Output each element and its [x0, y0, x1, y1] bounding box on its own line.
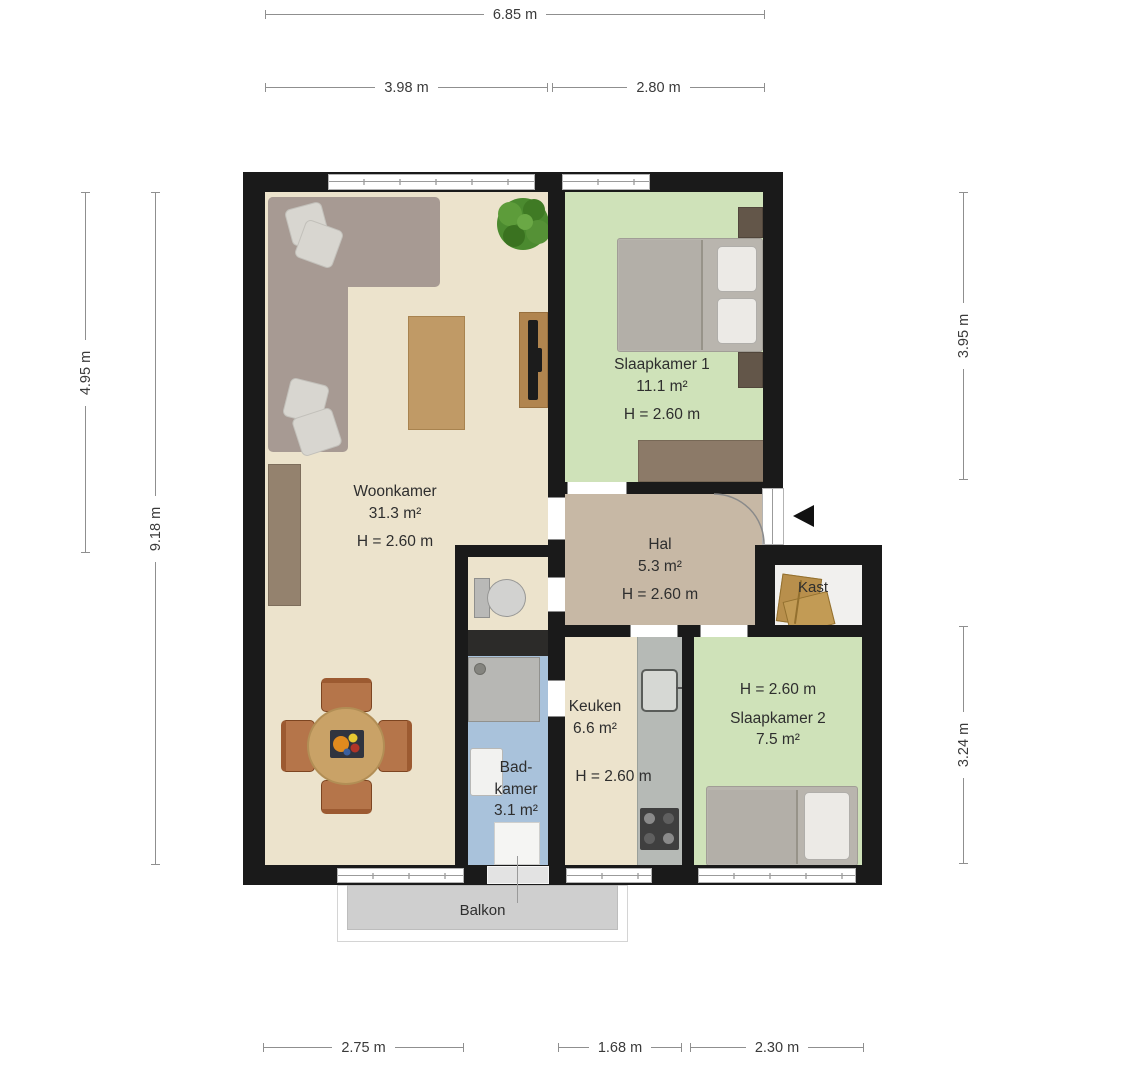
room-name: Woonkamer	[300, 481, 490, 503]
bed-duvet	[619, 240, 703, 350]
balcony-leader-line	[517, 856, 518, 903]
dim-top-right: 2.80 m	[552, 82, 765, 93]
bed-duvet	[708, 790, 798, 864]
door-opening-slaapkamer2	[700, 625, 748, 637]
dim-left-outer: 9.18 m	[150, 192, 161, 865]
dim-value: 3.95 m	[956, 314, 972, 358]
nightstand	[738, 207, 763, 238]
keuken-height-label: H = 2.60 m	[556, 766, 671, 788]
room-name: Slaapkamer 2	[690, 708, 866, 730]
bed-pillow	[717, 246, 757, 292]
dim-right-bottom: 3.24 m	[958, 626, 969, 864]
window	[566, 868, 652, 883]
kast-label: Kast	[798, 579, 828, 596]
room-name: Keuken	[540, 696, 650, 718]
room-name: Bad-	[471, 757, 561, 779]
bed-pillow	[717, 298, 757, 344]
balkon-label: Balkon	[337, 902, 628, 919]
room-height: H = 2.60 m	[580, 584, 740, 606]
dim-left-inner: 4.95 m	[80, 192, 91, 553]
dining-chair	[321, 780, 372, 814]
wall	[755, 545, 775, 637]
stove-icon	[640, 808, 679, 850]
room-height: H = 2.60 m	[572, 404, 752, 426]
dim-value: 4.95 m	[78, 350, 94, 394]
wall	[548, 192, 565, 494]
dim-top-left: 3.98 m	[265, 82, 548, 93]
dim-right-top: 3.95 m	[958, 192, 969, 480]
window	[562, 174, 650, 190]
dim-value: 2.30 m	[746, 1040, 808, 1056]
room-height: H = 2.60 m	[690, 679, 866, 701]
window	[698, 868, 856, 883]
shower-head-icon	[474, 663, 486, 675]
door-opening-wc	[548, 577, 565, 612]
wall	[763, 172, 783, 490]
entrance-door-opening	[762, 488, 784, 545]
slaapkamer1-label: Slaapkamer 1 11.1 m² H = 2.60 m	[572, 354, 752, 426]
bed-pillow	[804, 792, 850, 860]
dim-top-total: 6.85 m	[265, 9, 765, 20]
door-opening-keuken	[630, 625, 678, 637]
room-area: 11.1 m²	[572, 376, 752, 398]
wall	[455, 545, 468, 865]
hal-label: Hal 5.3 m² H = 2.60 m	[580, 534, 740, 606]
badkamer-label: Bad- kamer 3.1 m²	[471, 757, 561, 822]
coffee-table	[408, 316, 465, 430]
dim-value: 2.75 m	[332, 1040, 394, 1056]
room-area: 31.3 m²	[300, 503, 490, 525]
dim-bottom-right: 2.30 m	[690, 1042, 864, 1053]
window	[328, 174, 535, 190]
dresser	[638, 440, 765, 482]
balcony-door	[487, 866, 549, 884]
door-opening-slaapkamer1	[567, 482, 627, 494]
dim-value: 3.98 m	[375, 80, 437, 96]
tv-stand	[536, 348, 542, 372]
room-area: 3.1 m²	[471, 800, 561, 822]
dim-bottom-mid: 1.68 m	[558, 1042, 682, 1053]
floorplan-canvas: Balkon Woonkamer 31.3 m² H = 2.60 m Slaa…	[0, 0, 1143, 1080]
room-name: Hal	[580, 534, 740, 556]
dim-value: 3.24 m	[956, 723, 972, 767]
wall	[243, 172, 265, 885]
dim-bottom-left: 2.75 m	[263, 1042, 464, 1053]
dim-value: 1.68 m	[589, 1040, 651, 1056]
dining-table	[307, 707, 385, 785]
dim-value: 9.18 m	[148, 506, 164, 550]
toilet-icon	[487, 579, 526, 617]
room-area: 5.3 m²	[580, 556, 740, 578]
dim-value: 2.80 m	[627, 80, 689, 96]
door-opening-woonkamer	[548, 497, 565, 540]
room-area: 7.5 m²	[690, 729, 866, 751]
window	[337, 868, 464, 883]
sideboard	[268, 464, 301, 606]
room-name: kamer	[471, 779, 561, 801]
room-height: H = 2.60 m	[300, 531, 490, 553]
woonkamer-label: Woonkamer 31.3 m² H = 2.60 m	[300, 481, 490, 553]
room-name: Slaapkamer 1	[572, 354, 752, 376]
room-area: 6.6 m²	[540, 718, 650, 740]
wall	[468, 630, 548, 656]
room-height: H = 2.60 m	[556, 766, 671, 788]
slaapkamer2-label: H = 2.60 m Slaapkamer 2 7.5 m²	[690, 679, 866, 751]
dim-value: 6.85 m	[484, 7, 546, 23]
keuken-label: Keuken 6.6 m²	[540, 696, 650, 739]
entrance-arrow-icon	[793, 505, 814, 527]
